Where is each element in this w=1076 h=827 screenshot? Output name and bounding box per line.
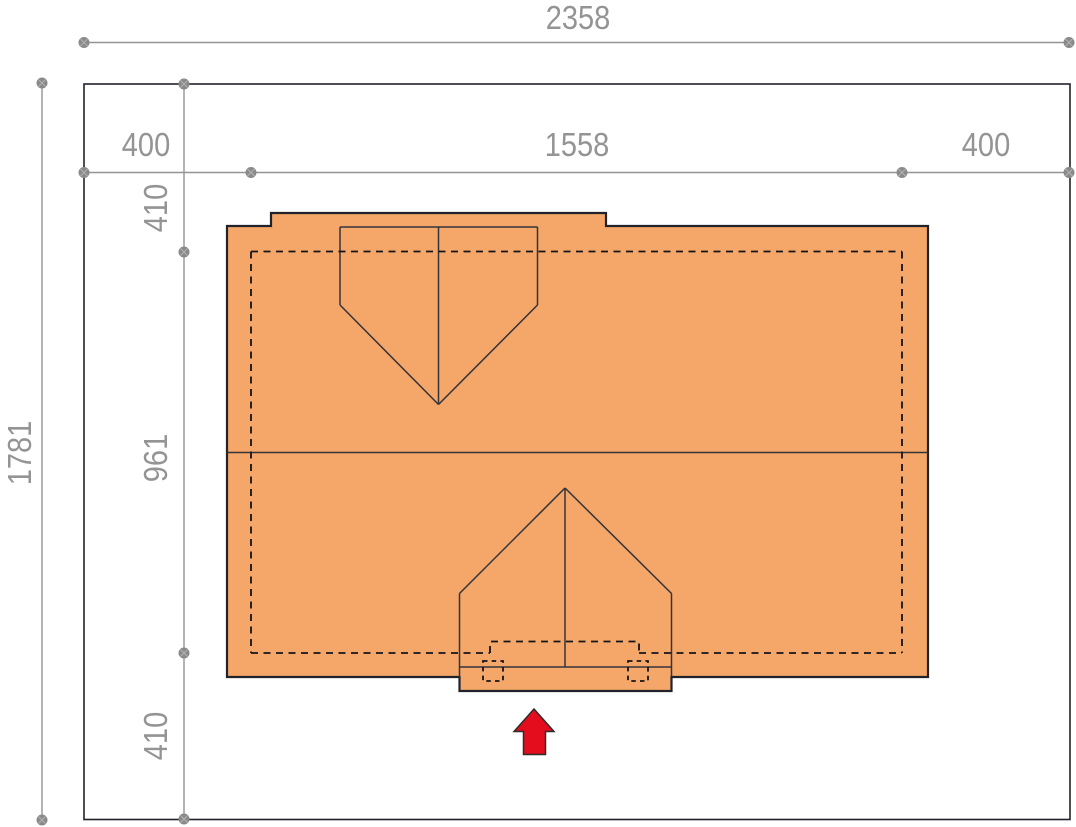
dimension-end-marker xyxy=(37,78,48,89)
dimension-label-right-setback: 400 xyxy=(962,126,1010,163)
dimension-marker xyxy=(179,247,190,258)
dimension-marker xyxy=(1064,167,1075,178)
site-plan-drawing: 2358 400 1558 400 xyxy=(0,0,1076,827)
dimension-column-vertical-segments: 410 961 410 xyxy=(137,79,189,825)
dimension-label-house-width: 1558 xyxy=(545,126,610,163)
dimension-marker xyxy=(179,648,190,659)
site-plan-canvas: 2358 400 1558 400 xyxy=(0,0,1076,827)
dimension-label-left-setback: 400 xyxy=(122,126,170,163)
dimension-row-horizontal-segments: 400 1558 400 xyxy=(79,126,1075,178)
dimension-end-marker xyxy=(37,815,48,826)
dimension-end-marker xyxy=(79,37,90,48)
dimension-label-top-setback: 410 xyxy=(137,184,174,232)
dimension-top-total-width: 2358 xyxy=(79,0,1075,48)
dimension-end-marker xyxy=(1064,37,1075,48)
dimension-label-bottom-setback: 410 xyxy=(137,712,174,760)
dimension-marker xyxy=(79,167,90,178)
dimension-marker xyxy=(246,167,257,178)
dimension-marker xyxy=(897,167,908,178)
dimension-marker xyxy=(179,814,190,825)
dimension-label-house-depth: 961 xyxy=(137,434,174,482)
dimension-label-total-height: 1781 xyxy=(1,421,38,486)
dimension-label-total-width: 2358 xyxy=(546,0,611,36)
dimension-marker xyxy=(179,79,190,90)
up-arrow-icon xyxy=(514,709,554,755)
dimension-left-total-height: 1781 xyxy=(1,78,47,826)
